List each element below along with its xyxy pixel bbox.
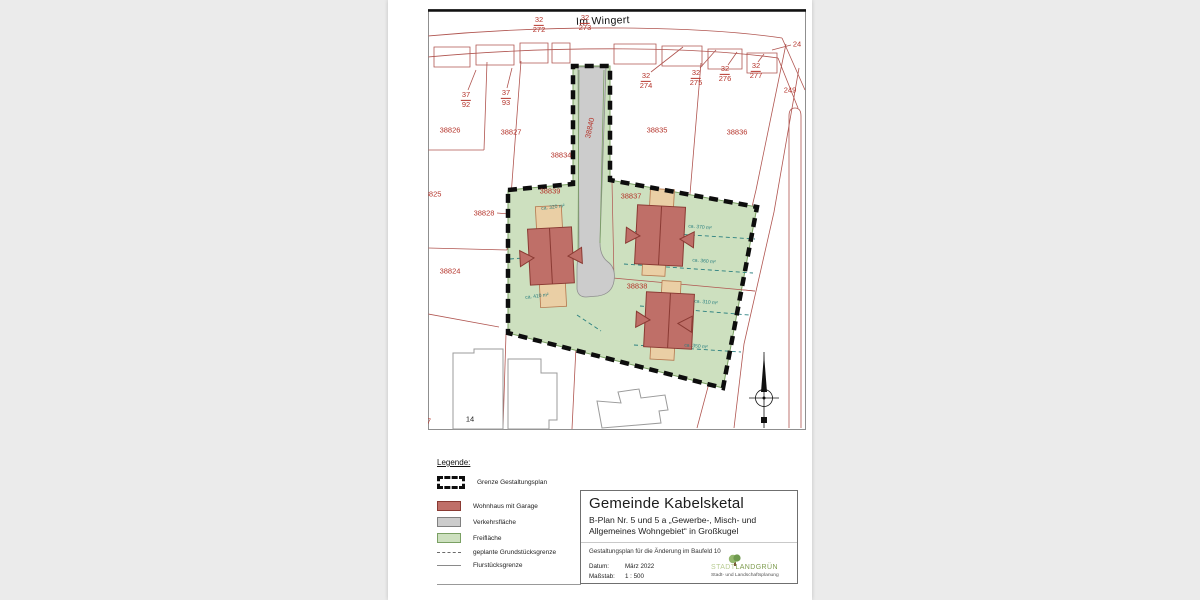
legend-swatch-house [437,501,461,511]
plan-title: B-Plan Nr. 5 und 5 a „Gewerbe-, Misch- u… [589,515,789,537]
parcel-fraction-label: 32274 [640,72,653,90]
legend-swatch-boundary [437,476,465,489]
legend-item-label: Wohnhaus mit Garage [473,503,538,510]
legend-item-dashed: geplante Grundstücksgrenze [437,549,582,556]
plan-title-line1: B-Plan Nr. 5 und 5 a „Gewerbe-, Misch- u… [589,515,756,525]
date-label: Datum: [589,562,625,571]
sheet-bottom-border [437,584,581,585]
parcel-number-label: 38840 [584,117,596,139]
parcel-number-label: 38826 [440,126,461,134]
parcel-fraction-label: 32275 [690,69,703,87]
stadtlandgruen-logo: STADTLANDGRÜN Stadt- und Landschaftsplan… [711,564,791,578]
legend-item-label: Freifläche [473,535,502,542]
parcel-number-label: 38827 [501,128,522,136]
legend-items: Grenze GestaltungsplanWohnhaus mit Garag… [437,476,582,569]
plot-area-label: ca. 370 m² [688,224,712,231]
legend-swatch-road [437,517,461,527]
title-block: Gemeinde Kabelsketal B-Plan Nr. 5 und 5 … [580,490,798,584]
legend-item-label: Verkehrsfläche [473,519,516,526]
parcel-number-label: 24 [793,40,801,48]
parcel-number-label: 38835 [647,126,668,134]
legend-item-label: Flurstücksgrenze [473,562,523,569]
parcel-number-label: 38824 [440,267,461,275]
parcel-number-label: 38834 [551,151,572,159]
parcel-fraction-label: 3793 [501,89,511,107]
plot-area-label: ca. 360 m² [692,258,716,265]
parcel-fraction-label: 32272 [533,16,546,34]
parcel-number-label: 38828 [474,209,495,217]
scale-label: Maßstab: [589,572,625,581]
legend-item-label: geplante Grundstücksgrenze [473,549,556,556]
legend-item-boundary: Grenze Gestaltungsplan [437,476,582,489]
parcel-number-label: 38837 [621,192,642,200]
parcel-number-label: 38838 [627,282,648,290]
parcel-fraction-label: 32277 [750,62,763,80]
parcel-number-label: 7 [428,417,431,425]
parcel-number-label: 38825 [428,190,441,198]
legend-swatch-solid [437,565,461,566]
parcel-number-label: 38839 [540,187,561,195]
legend-swatch-open [437,533,461,543]
municipality-title: Gemeinde Kabelsketal [589,495,789,512]
legend-title: Legende: [437,458,582,467]
tree-icon [727,553,743,566]
plot-area-label: ca. 350 m² [684,343,708,350]
parcel-fraction-label: 3792 [461,91,471,109]
plan-title-line2: Allgemeines Wohngebiet“ in Großkugel [589,526,738,536]
plan-subtitle: Gestaltungsplan für die Änderung im Bauf… [589,548,789,555]
parcel-fraction-label: 32273 [579,14,592,32]
parcel-number-label: 38836 [727,128,748,136]
logo-wordmark: STADTLANDGRÜN [711,564,791,572]
parcel-fraction-label: 32276 [719,65,732,83]
parcel-number-label: 249 [784,86,797,94]
legend-item-label: Grenze Gestaltungsplan [477,479,547,486]
date-value: März 2022 [625,562,654,571]
plot-area-label: ca. 410 m² [525,293,549,301]
legend-item-road: Verkehrsfläche [437,517,582,527]
scale-value: 1 : 500 [625,572,644,581]
screenshot-canvas: Im Wingert 32272322733792379332274322753… [0,0,1200,600]
plot-area-label: ca. 310 m² [694,299,718,306]
parcel-number-label: 14 [466,415,474,423]
logo-subtitle: Stadt- und Landschaftsplanung [711,573,791,578]
title-block-divider [581,542,797,543]
legend-item-house: Wohnhaus mit Garage [437,501,582,511]
map-labels-layer: Im Wingert 32272322733792379332274322753… [428,9,805,429]
legend-item-solid: Flurstücksgrenze [437,562,582,569]
legend: Legende: Grenze GestaltungsplanWohnhaus … [437,458,582,575]
legend-swatch-dashed [437,552,461,553]
legend-item-open: Freifläche [437,533,582,543]
plot-area-label: ca. 320 m² [541,204,565,212]
